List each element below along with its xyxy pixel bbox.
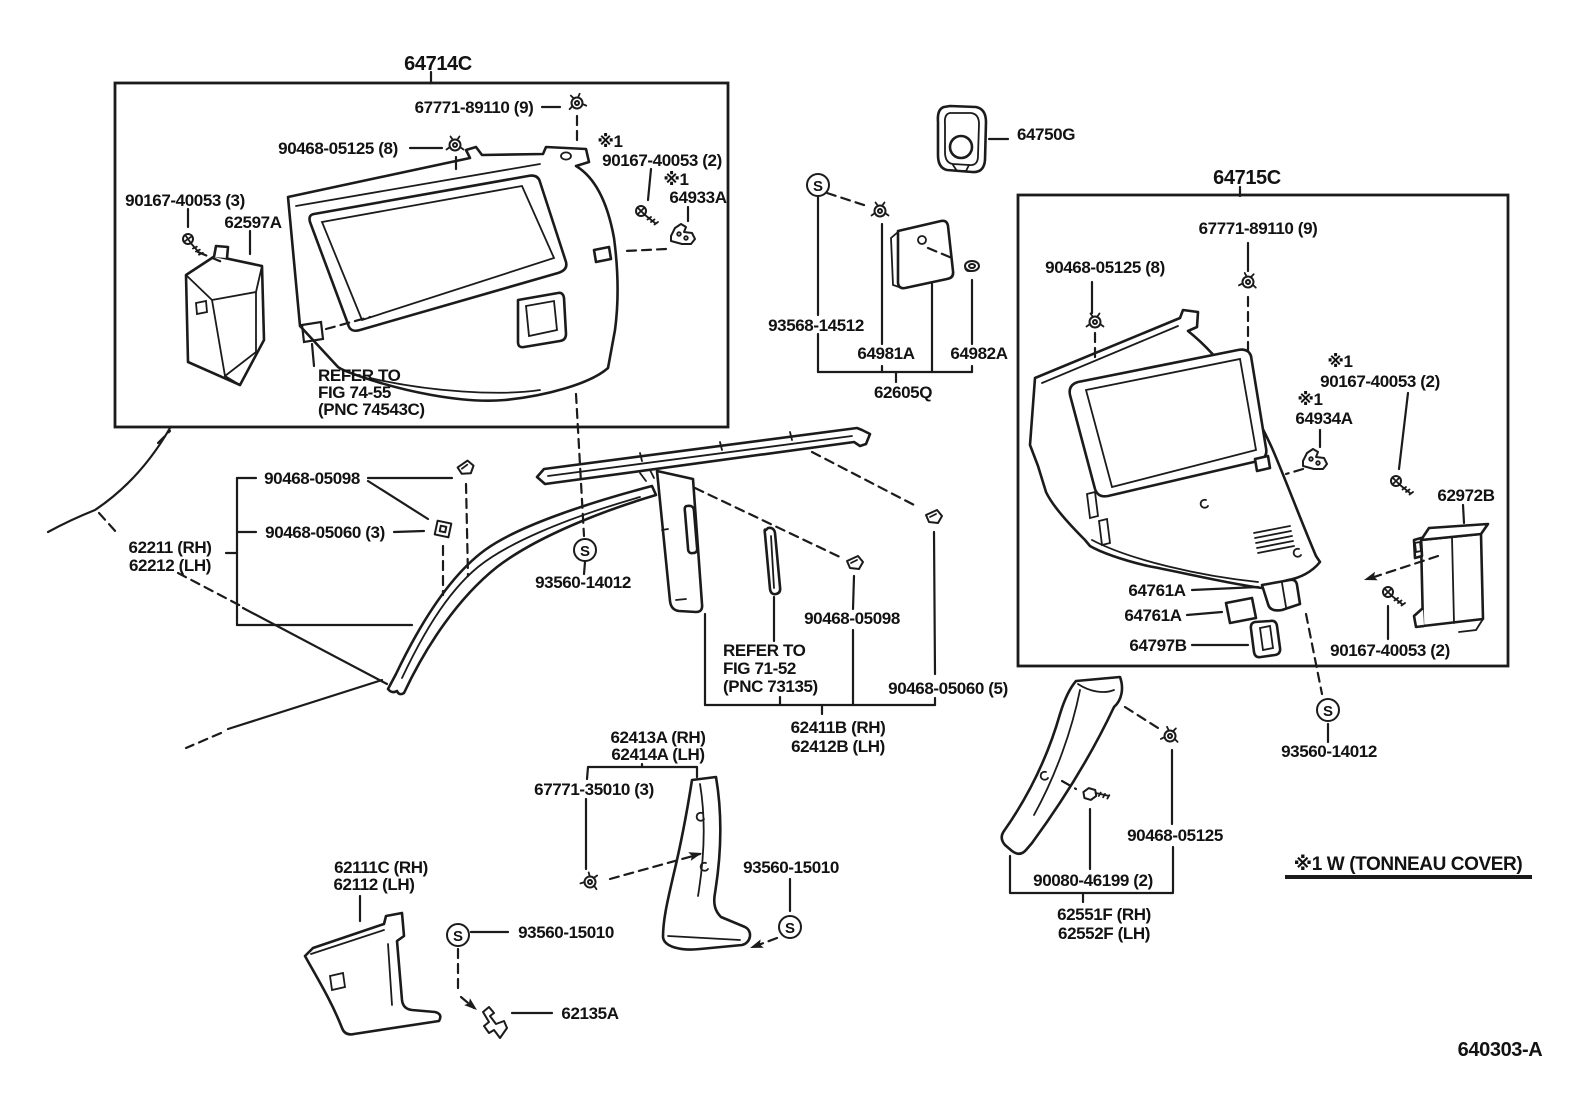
part-number-label: 62597A (224, 213, 281, 232)
s-symbol-letter: S (1323, 703, 1333, 720)
flap-64761a-upper-drawing (1262, 580, 1300, 611)
s-symbol-letter: S (785, 920, 795, 937)
part-number-label: 64750G (1017, 125, 1075, 144)
screw-icon (1383, 587, 1405, 606)
cowl-trim-62111c-drawing (305, 913, 440, 1034)
part-number-label: 90167-40053 (2) (1320, 372, 1440, 391)
part-number-label: 62552F (LH) (1058, 924, 1150, 943)
box-title-64715c: 64715C (1213, 167, 1281, 189)
part-number-label: 64933A (669, 188, 726, 207)
flap-64761a-lower-drawing (1226, 598, 1256, 623)
arrowhead (1363, 572, 1378, 585)
part-number-label: 62972B (1437, 486, 1494, 505)
part-number-label: 64761A (1128, 581, 1185, 600)
clip-icon (1087, 314, 1104, 328)
s-symbol-letter: S (580, 543, 590, 560)
part-number-label: 90468-05125 (1127, 826, 1223, 845)
bpillar-lower-garnish-62413a-drawing (663, 777, 750, 950)
part-number-label: 90468-05125 (8) (278, 139, 398, 158)
part-number-label: 67771-35010 (3) (534, 780, 654, 799)
speaker-box-62597a-drawing (186, 246, 264, 385)
part-number-label: 62551F (RH) (1057, 905, 1151, 924)
part-number-label: 93560-14012 (535, 573, 631, 592)
part-number-label: 64761A (1124, 606, 1181, 625)
part-number-label: 62212 (LH) (129, 556, 211, 575)
note-flag: ※1 (1297, 390, 1322, 409)
quarter-pillar-garnish-62551f-drawing (1002, 677, 1122, 854)
screw-icon (1391, 476, 1413, 495)
box-title-64714c: 64714C (404, 53, 472, 75)
part-number-label: 93560-15010 (518, 923, 614, 942)
part-number-label: 64982A (950, 344, 1007, 363)
part-number-label: 90468-05098 (804, 609, 900, 628)
part-number-label: 62211 (RH) (129, 538, 212, 557)
part-number-label: 90468-05060 (3) (265, 523, 385, 542)
bracket-64933a-icon (671, 224, 695, 244)
note-flag: ※1 (597, 132, 622, 151)
bracket-64934a-icon (1303, 449, 1327, 469)
screw-icon (181, 233, 206, 255)
part-number-label: 67771-89110 (9) (1199, 219, 1318, 238)
s-fixing-symbol: S (1317, 699, 1339, 721)
part-number-label: 93568-14512 (768, 316, 864, 335)
note-flag: ※1 (1327, 352, 1352, 371)
tonneau-cover-note: ※1 W (TONNEAU COVER) (1294, 854, 1523, 875)
part-number-label: 90167-40053 (2) (602, 151, 722, 170)
clip-icon (1161, 726, 1180, 743)
part-number-label: 90468-05060 (5) (888, 679, 1008, 698)
arrowhead (748, 939, 763, 952)
part-number-label: 93560-14012 (1281, 742, 1377, 761)
s-fixing-symbol: S (779, 916, 801, 938)
refer-note-line: (PNC 73135) (723, 677, 818, 696)
part-number-label: 62112 (LH) (333, 875, 414, 894)
bolt-icon (1083, 785, 1110, 803)
clip-icon (435, 521, 452, 538)
clip-icon (926, 510, 942, 523)
hook-clip-62135a-icon (483, 1007, 507, 1038)
part-number-label: 90468-05098 (264, 469, 360, 488)
part-number-label: 90167-40053 (2) (1330, 641, 1450, 660)
clip-icon (847, 556, 863, 569)
part-number-label: 62605Q (874, 383, 932, 402)
cover-62972b-drawing (1414, 524, 1488, 632)
part-number-label: 90080-46199 (2) (1033, 871, 1153, 890)
s-fixing-symbol: S (447, 924, 469, 946)
parts-diagram-page: S S S S S 64714C 67771-89110 (9) 90468-0… (0, 0, 1592, 1099)
clip-icon (567, 93, 587, 110)
clip-icon (447, 137, 464, 151)
part-number-label: 67771-89110 (9) (415, 98, 534, 117)
refer-note-line: REFER TO (723, 641, 806, 660)
pillar-sliver-73135-drawing (765, 528, 781, 594)
clip-icon (872, 203, 889, 217)
part-number-label: 90468-05125 (8) (1045, 258, 1165, 277)
part-number-label: 64981A (857, 344, 914, 363)
bezel-64797b-drawing (1251, 621, 1280, 657)
part-number-label: 64934A (1295, 409, 1352, 428)
refer-note-line: FIG 71-52 (723, 659, 796, 678)
grommet-icon (965, 261, 979, 271)
clip-icon (457, 460, 475, 476)
part-number-label: 62412B (LH) (791, 737, 885, 756)
part-number-label: 93560-15010 (743, 858, 839, 877)
note-flag: ※1 (663, 170, 688, 189)
part-number-label: 64797B (1129, 636, 1186, 655)
escutcheon-64750g-drawing (938, 106, 986, 172)
figure-code: 640303-A (1458, 1039, 1543, 1061)
part-number-label: 62411B (RH) (791, 718, 886, 737)
clip-icon (1239, 272, 1258, 288)
s-symbol-letter: S (453, 928, 463, 945)
s-symbol-letter: S (813, 178, 823, 195)
screw-icon (636, 206, 658, 225)
quarter-trim-panel-right-drawing (1030, 310, 1320, 588)
refer-note-line: (PNC 74543C) (318, 400, 425, 419)
diagram-canvas: S S S S S 64714C 67771-89110 (9) 90468-0… (0, 0, 1592, 1099)
part-number-label: 62135A (561, 1004, 618, 1023)
quarter-trim-panel-left-drawing (288, 147, 618, 401)
s-fixing-symbol: S (807, 174, 829, 196)
s-fixing-symbol: S (574, 539, 596, 561)
clip-icon (580, 871, 601, 890)
part-number-label: 62414A (LH) (611, 745, 704, 764)
part-number-label: 90167-40053 (3) (125, 191, 245, 210)
